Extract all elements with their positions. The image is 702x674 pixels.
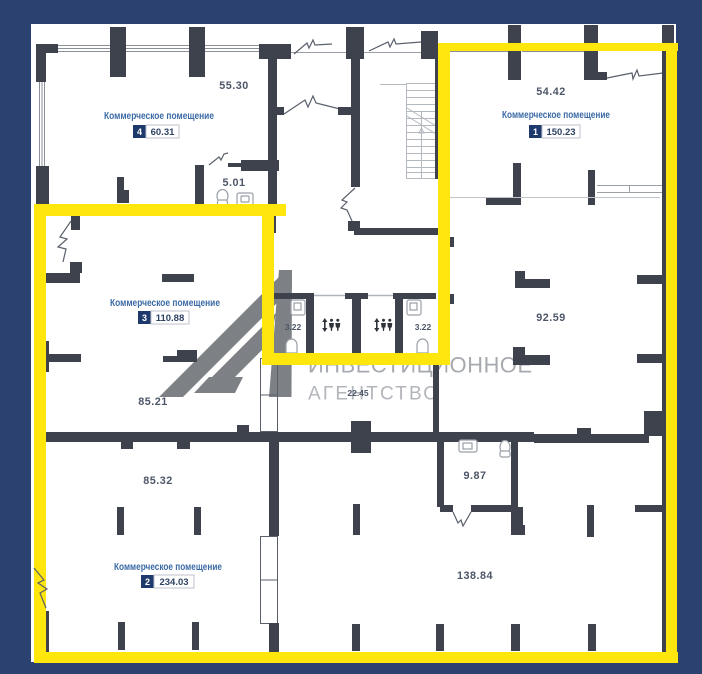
svg-text:92.59: 92.59 bbox=[536, 312, 566, 324]
svg-text:3: 3 bbox=[142, 313, 147, 323]
svg-text:Коммерческое помещение: Коммерческое помещение bbox=[104, 111, 214, 122]
svg-text:Коммерческое помещение: Коммерческое помещение bbox=[110, 298, 220, 309]
svg-text:1: 1 bbox=[533, 127, 538, 137]
svg-text:110.88: 110.88 bbox=[156, 313, 185, 324]
svg-text:Коммерческое помещение: Коммерческое помещение bbox=[114, 562, 222, 573]
svg-text:5.01: 5.01 bbox=[222, 177, 245, 189]
svg-text:АГЕНТСТВО: АГЕНТСТВО bbox=[308, 384, 440, 405]
svg-text:3.22: 3.22 bbox=[415, 322, 432, 332]
svg-text:60.31: 60.31 bbox=[151, 127, 175, 138]
svg-text:2: 2 bbox=[145, 577, 150, 587]
svg-text:150.23: 150.23 bbox=[546, 127, 575, 138]
svg-text:9.87: 9.87 bbox=[463, 470, 486, 482]
svg-text:85.32: 85.32 bbox=[143, 475, 173, 487]
svg-text:22.45: 22.45 bbox=[347, 388, 369, 398]
svg-text:55.30: 55.30 bbox=[219, 80, 249, 92]
svg-text:4: 4 bbox=[137, 127, 142, 137]
svg-text:54.42: 54.42 bbox=[536, 86, 566, 98]
svg-text:85.21: 85.21 bbox=[138, 396, 168, 408]
svg-text:234.03: 234.03 bbox=[159, 577, 188, 588]
svg-text:3.22: 3.22 bbox=[285, 322, 302, 332]
svg-text:Коммерческое помещение: Коммерческое помещение bbox=[502, 110, 610, 121]
svg-text:138.84: 138.84 bbox=[457, 570, 493, 582]
